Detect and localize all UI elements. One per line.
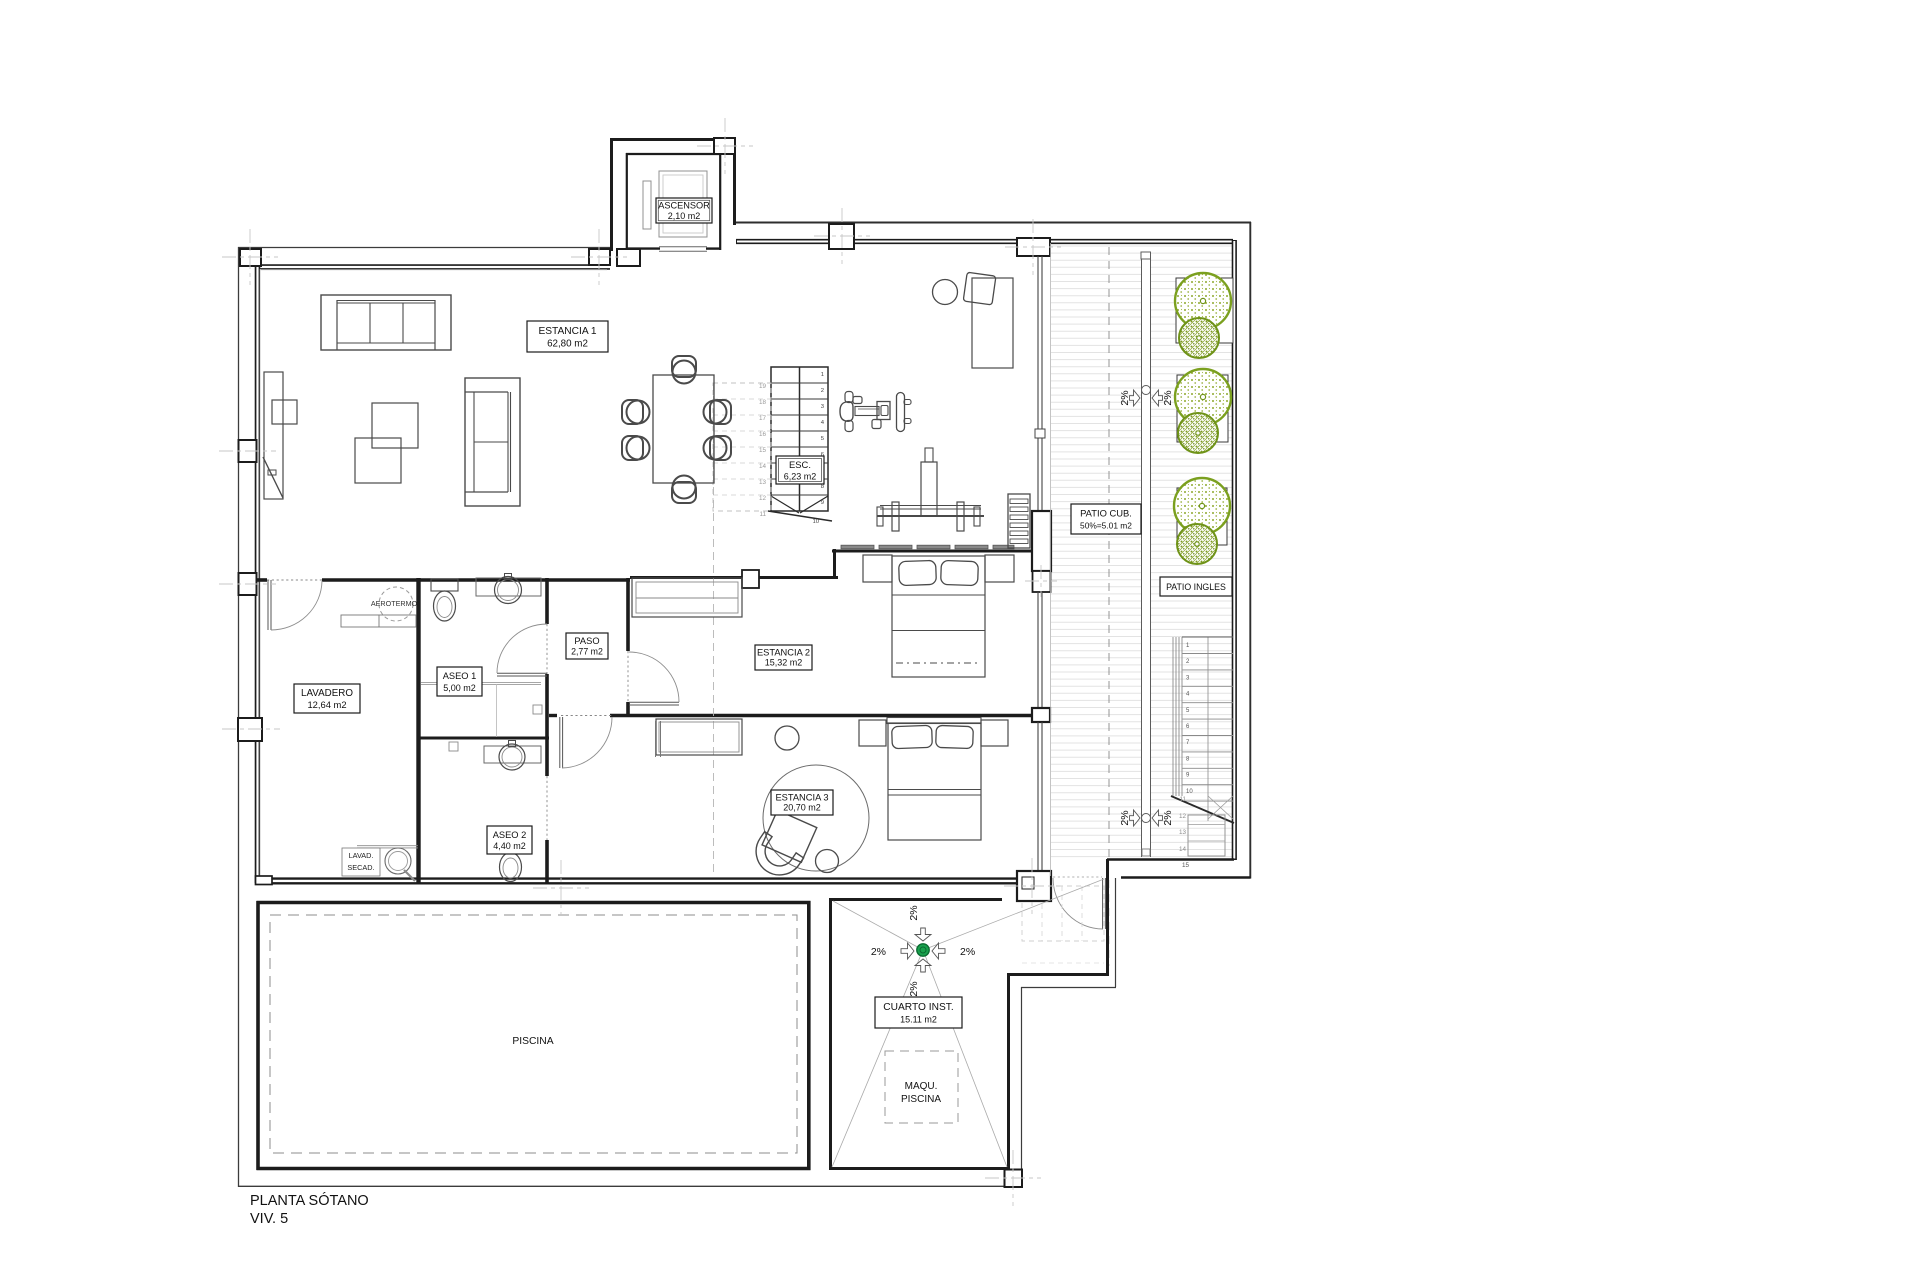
svg-text:ESTANCIA 1: ESTANCIA 1 [538,326,596,337]
svg-text:ASEO 2: ASEO 2 [493,830,527,840]
svg-text:ESC.: ESC. [789,459,811,470]
svg-text:ESTANCIA 2: ESTANCIA 2 [757,648,810,658]
svg-text:6,23 m2: 6,23 m2 [784,472,817,482]
svg-text:12,64 m2: 12,64 m2 [307,699,346,710]
svg-text:11: 11 [1179,796,1186,803]
svg-text:VIV. 5: VIV. 5 [250,1211,288,1227]
svg-text:ASEO 1: ASEO 1 [443,671,477,681]
svg-text:14: 14 [1179,846,1187,853]
svg-text:LAVAD.: LAVAD. [349,851,374,860]
svg-text:ESTANCIA 3: ESTANCIA 3 [775,793,828,803]
svg-text:17: 17 [759,415,767,422]
svg-text:CUARTO INST.: CUARTO INST. [883,1002,953,1013]
svg-text:10: 10 [812,519,819,525]
svg-text:2%: 2% [908,905,920,920]
svg-text:20,70 m2: 20,70 m2 [783,803,821,813]
svg-text:14: 14 [759,463,767,470]
svg-text:2%: 2% [1162,390,1174,405]
svg-text:2%: 2% [871,946,886,958]
svg-text:SECAD.: SECAD. [347,863,374,872]
svg-text:4,40 m2: 4,40 m2 [493,841,526,851]
svg-text:15: 15 [1182,862,1190,869]
svg-text:11: 11 [759,511,766,518]
svg-text:9: 9 [821,500,824,506]
svg-text:50%=5.01 m2: 50%=5.01 m2 [1080,521,1132,531]
svg-text:15,32 m2: 15,32 m2 [765,658,803,668]
svg-text:AEROTERMO: AEROTERMO [371,599,418,608]
svg-text:12: 12 [759,495,767,502]
svg-text:2,10 m2: 2,10 m2 [668,211,701,221]
svg-text:2: 2 [821,388,824,394]
svg-text:PISCINA: PISCINA [901,1094,941,1105]
svg-text:19: 19 [759,383,767,390]
svg-text:PATIO INGLES: PATIO INGLES [1166,582,1226,592]
svg-text:PISCINA: PISCINA [512,1036,553,1047]
svg-text:13: 13 [759,479,767,486]
svg-text:15.11 m2: 15.11 m2 [900,1014,937,1024]
svg-text:2,77 m2: 2,77 m2 [571,646,603,656]
svg-text:18: 18 [759,399,767,406]
svg-text:1: 1 [821,372,824,378]
svg-text:PASO: PASO [574,636,599,646]
svg-text:PLANTA SÓTANO: PLANTA SÓTANO [250,1192,369,1209]
svg-text:2%: 2% [908,981,920,996]
svg-text:LAVADERO: LAVADERO [301,688,353,699]
svg-text:10: 10 [1186,789,1193,795]
svg-text:13: 13 [1179,829,1187,836]
svg-text:MAQU.: MAQU. [905,1081,938,1092]
svg-text:15: 15 [759,447,767,454]
svg-text:16: 16 [759,431,767,438]
svg-text:62,80 m2: 62,80 m2 [547,338,588,349]
svg-text:ASCENSOR: ASCENSOR [658,201,710,211]
svg-text:2%: 2% [1162,810,1174,825]
svg-text:5,00 m2: 5,00 m2 [443,683,476,693]
svg-text:PATIO CUB.: PATIO CUB. [1080,508,1132,519]
svg-text:12: 12 [1179,813,1187,820]
svg-text:2%: 2% [960,946,975,958]
